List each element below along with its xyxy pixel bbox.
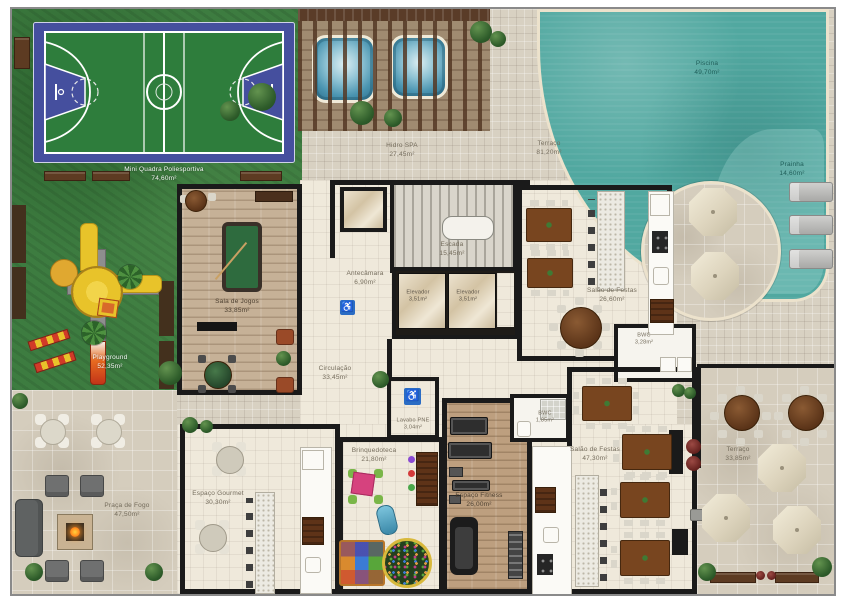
room-label-brinquedoteca: Brinquedoteca 21,80m² <box>352 447 397 465</box>
ball-pit <box>382 538 432 588</box>
round-table <box>96 419 122 445</box>
pergola-beam <box>298 9 490 21</box>
card-table <box>204 361 232 389</box>
shrub <box>812 557 832 577</box>
toy-shelf <box>416 452 438 506</box>
play-mat <box>339 540 385 586</box>
room-name: BWC <box>635 333 653 340</box>
hedge <box>672 384 685 397</box>
hedge <box>684 387 696 399</box>
room-name: Espaço Fitness <box>455 492 502 501</box>
room-name: Terraço <box>536 140 561 149</box>
armchair <box>80 560 104 582</box>
ivy-plant <box>350 101 374 125</box>
potted-plant <box>372 371 389 388</box>
bench <box>14 37 30 69</box>
room-area: 21,80m² <box>352 456 397 465</box>
ivy-plant <box>384 109 402 127</box>
shrub <box>698 563 716 581</box>
bench <box>775 572 819 583</box>
shrub <box>158 361 182 385</box>
room-label-prainha: Prainha 14,60m² <box>779 161 804 179</box>
chairs <box>208 193 216 201</box>
floorplan: ♿ ♿ <box>10 7 836 596</box>
room-name: BWC <box>536 411 554 418</box>
bench <box>240 171 282 181</box>
wall-segment <box>697 364 834 368</box>
room-name: Mini Quadra Poliesportiva <box>124 166 203 175</box>
planter-hedge <box>12 267 26 319</box>
room-area: 3,04m² <box>397 425 430 432</box>
room-area: 26,60m² <box>587 296 637 305</box>
armchair <box>276 329 294 345</box>
room-name: Sala de Jogos <box>215 298 259 307</box>
room-name: Salão de Festas <box>570 446 620 455</box>
potted-plant <box>276 351 291 366</box>
grill-cabinet <box>650 299 674 323</box>
room-label-terraco-superior: Terraço 81,20m² <box>536 140 561 158</box>
room-name: Playground <box>93 354 128 363</box>
chairs <box>633 392 639 414</box>
play-slide <box>80 223 98 271</box>
sun-lounger <box>789 182 833 202</box>
room-label-praca-de-fogo: Praça de Fogo 47,50m² <box>104 502 149 520</box>
fridge <box>302 450 324 470</box>
room-area: 27,45m² <box>386 151 418 160</box>
room-label-escada: Escada 15,45m² <box>439 241 464 259</box>
dining-table <box>526 208 572 242</box>
toy <box>408 456 415 463</box>
room-area: 15,45m² <box>439 250 464 259</box>
bench <box>710 572 756 583</box>
elevator-lobby-nook <box>497 273 514 327</box>
sun-lounger <box>789 249 833 269</box>
dining-table <box>527 258 573 288</box>
room-area: 6,90m² <box>346 279 383 288</box>
room-name: Antecâmara <box>346 270 383 279</box>
bar-counter <box>255 492 275 594</box>
room-label-salao-1: Salão de Festas 26,60m² <box>587 287 637 305</box>
room-label-quadra: Mini Quadra Poliesportiva 74,60m² <box>124 166 203 184</box>
planter <box>756 571 765 580</box>
room-area: 47,30m² <box>570 455 620 464</box>
shrub <box>25 563 43 581</box>
kids-table <box>351 472 376 497</box>
sun-lounger <box>789 215 833 235</box>
toilet <box>660 357 676 372</box>
room-area: 3,51m² <box>406 297 429 304</box>
treadmill <box>450 517 478 575</box>
room-label-circulacao: Circulação 33,45m² <box>319 365 352 383</box>
room-label-elevador-2: Elevador 3,51m² <box>456 290 479 305</box>
parasol <box>773 506 821 554</box>
chairs <box>573 392 579 414</box>
wall-segment <box>672 529 688 555</box>
wheelchair-glyph: ♿ <box>341 303 353 313</box>
room-area: 33,85m² <box>215 307 259 316</box>
sideboard <box>255 191 293 202</box>
toy <box>408 484 415 491</box>
billiards-table <box>222 222 262 292</box>
dining-table <box>582 386 632 421</box>
chairs <box>575 297 584 305</box>
armchair <box>80 475 104 497</box>
toilet <box>517 421 531 437</box>
dining-table <box>620 540 670 576</box>
room-area: 49,70m² <box>694 69 719 78</box>
dumbbell-rack <box>508 531 523 579</box>
parasol <box>691 252 739 300</box>
palm-tree <box>118 265 142 289</box>
bar-counter <box>597 191 625 291</box>
sink <box>305 557 321 573</box>
bench <box>44 171 86 181</box>
room-name: Lavabo PNE <box>397 418 430 425</box>
weight-bench <box>452 480 490 491</box>
parasol <box>758 444 806 492</box>
room-area: 81,20m² <box>536 149 561 158</box>
wall-segment <box>330 180 530 185</box>
wheelchair-glyph: ♿ <box>406 391 420 402</box>
ivy-plant <box>220 101 240 121</box>
room-name: Circulação <box>319 365 352 374</box>
armchair <box>45 560 69 582</box>
dumbbells <box>449 467 463 477</box>
planter <box>767 571 776 580</box>
dining-table <box>620 482 670 518</box>
room-area: 33,45m² <box>319 374 352 383</box>
room-area: 3,51m² <box>456 297 479 304</box>
room-name: Espaço Gourmet <box>192 490 244 499</box>
room-name: Brinquedoteca <box>352 447 397 456</box>
chairs <box>611 546 617 568</box>
round-table <box>724 395 760 431</box>
room-area: 74,60m² <box>124 175 203 184</box>
room-label-piscina: Piscina 49,70m² <box>694 60 719 78</box>
round-table <box>788 395 824 431</box>
round-dining-table <box>560 307 602 349</box>
room-label-antecamara: Antecâmara 6,90m² <box>346 270 383 288</box>
room-label-elevador-1: Elevador 3,51m² <box>406 290 429 305</box>
room-label-bwc-1: BWC 3,28m² <box>635 333 653 348</box>
gym-machine <box>448 442 492 459</box>
sink <box>543 527 559 543</box>
bar-stools <box>588 199 595 285</box>
round-table <box>40 419 66 445</box>
gym-machine <box>450 417 488 435</box>
room-label-salao-2: Salão de Festas 47,30m² <box>570 446 620 464</box>
chairs <box>198 355 206 363</box>
armchair <box>45 475 69 497</box>
room-area: 3,28m² <box>635 340 653 347</box>
room-area: 1,85m² <box>536 418 554 425</box>
planter-hedge <box>12 205 26 263</box>
palm-tree <box>82 321 106 345</box>
fire-flame <box>70 527 80 537</box>
room-name: Escada <box>439 241 464 250</box>
room-label-sala-de-jogos: Sala de Jogos 33,85m² <box>215 298 259 316</box>
grill-cabinet <box>535 487 556 513</box>
ivy-plant <box>490 31 506 47</box>
shrub <box>12 393 28 409</box>
side-table <box>185 190 207 212</box>
room-name: Terraço <box>725 446 750 455</box>
chairs <box>736 386 745 394</box>
room-label-hidro-spa: Hidro SPA 27,45m² <box>386 142 418 160</box>
wheelchair-icon: ♿ <box>404 388 421 405</box>
round-table <box>199 524 227 552</box>
floorplan-canvas: ♿ ♿ <box>0 0 858 600</box>
storage-closet <box>340 187 387 232</box>
play-panel <box>97 298 119 319</box>
room-label-bwc-2: BWC 1,85m² <box>536 411 554 426</box>
wall-segment <box>697 368 701 468</box>
ivy-plant <box>470 21 492 43</box>
room-label-espaco-fitness: Espaço Fitness 26,00m² <box>455 492 502 510</box>
room-escada <box>390 181 517 273</box>
ivy-plant <box>248 83 276 111</box>
chairs <box>611 488 617 510</box>
dining-table <box>622 434 672 470</box>
stair-landing <box>442 216 494 240</box>
room-label-espaco-gourmet: Espaço Gourmet 30,30m² <box>192 490 244 508</box>
parasol <box>689 188 737 236</box>
room-label-lavabo-pne: Lavabo PNE 3,04m² <box>397 418 430 433</box>
sink <box>653 267 669 285</box>
room-name: Hidro SPA <box>386 142 418 151</box>
room-label-terraco-lateral: Terraço 33,85m² <box>725 446 750 464</box>
room-name: Piscina <box>694 60 719 69</box>
round-table <box>216 446 244 474</box>
room-name: Salão de Festas <box>587 287 637 296</box>
wheelchair-icon: ♿ <box>340 300 355 315</box>
bar-stools <box>246 498 253 588</box>
room-name: Prainha <box>779 161 804 170</box>
toy <box>408 470 415 477</box>
tv-console <box>197 322 237 331</box>
fridge <box>650 194 670 216</box>
wall-segment <box>330 180 335 258</box>
room-area: 30,30m² <box>192 499 244 508</box>
shrub <box>145 563 163 581</box>
treadmill-belt <box>455 527 473 569</box>
grill-cabinet <box>302 517 324 545</box>
chairs <box>800 386 809 394</box>
stove <box>652 231 668 253</box>
bar-stools <box>600 481 607 581</box>
armchair <box>276 377 294 393</box>
room-name: Elevador <box>406 290 429 297</box>
room-area: 47,50m² <box>104 511 149 520</box>
shrub <box>200 420 213 433</box>
parasol <box>702 494 750 542</box>
room-name: Elevador <box>456 290 479 297</box>
planter <box>686 456 701 471</box>
room-name: Praça de Fogo <box>104 502 149 511</box>
planter <box>686 439 701 454</box>
shrub <box>182 417 198 433</box>
room-area: 33,85m² <box>725 455 750 464</box>
sofa <box>15 499 43 557</box>
room-area: 26,00m² <box>455 501 502 510</box>
room-area: 14,60m² <box>779 170 804 179</box>
room-label-playground: Playground 52,35m² <box>93 354 128 372</box>
stove <box>537 554 553 575</box>
fire-pit <box>57 514 93 550</box>
bar-counter <box>575 475 599 587</box>
room-area: 52,35m² <box>93 363 128 372</box>
sink <box>677 357 692 372</box>
